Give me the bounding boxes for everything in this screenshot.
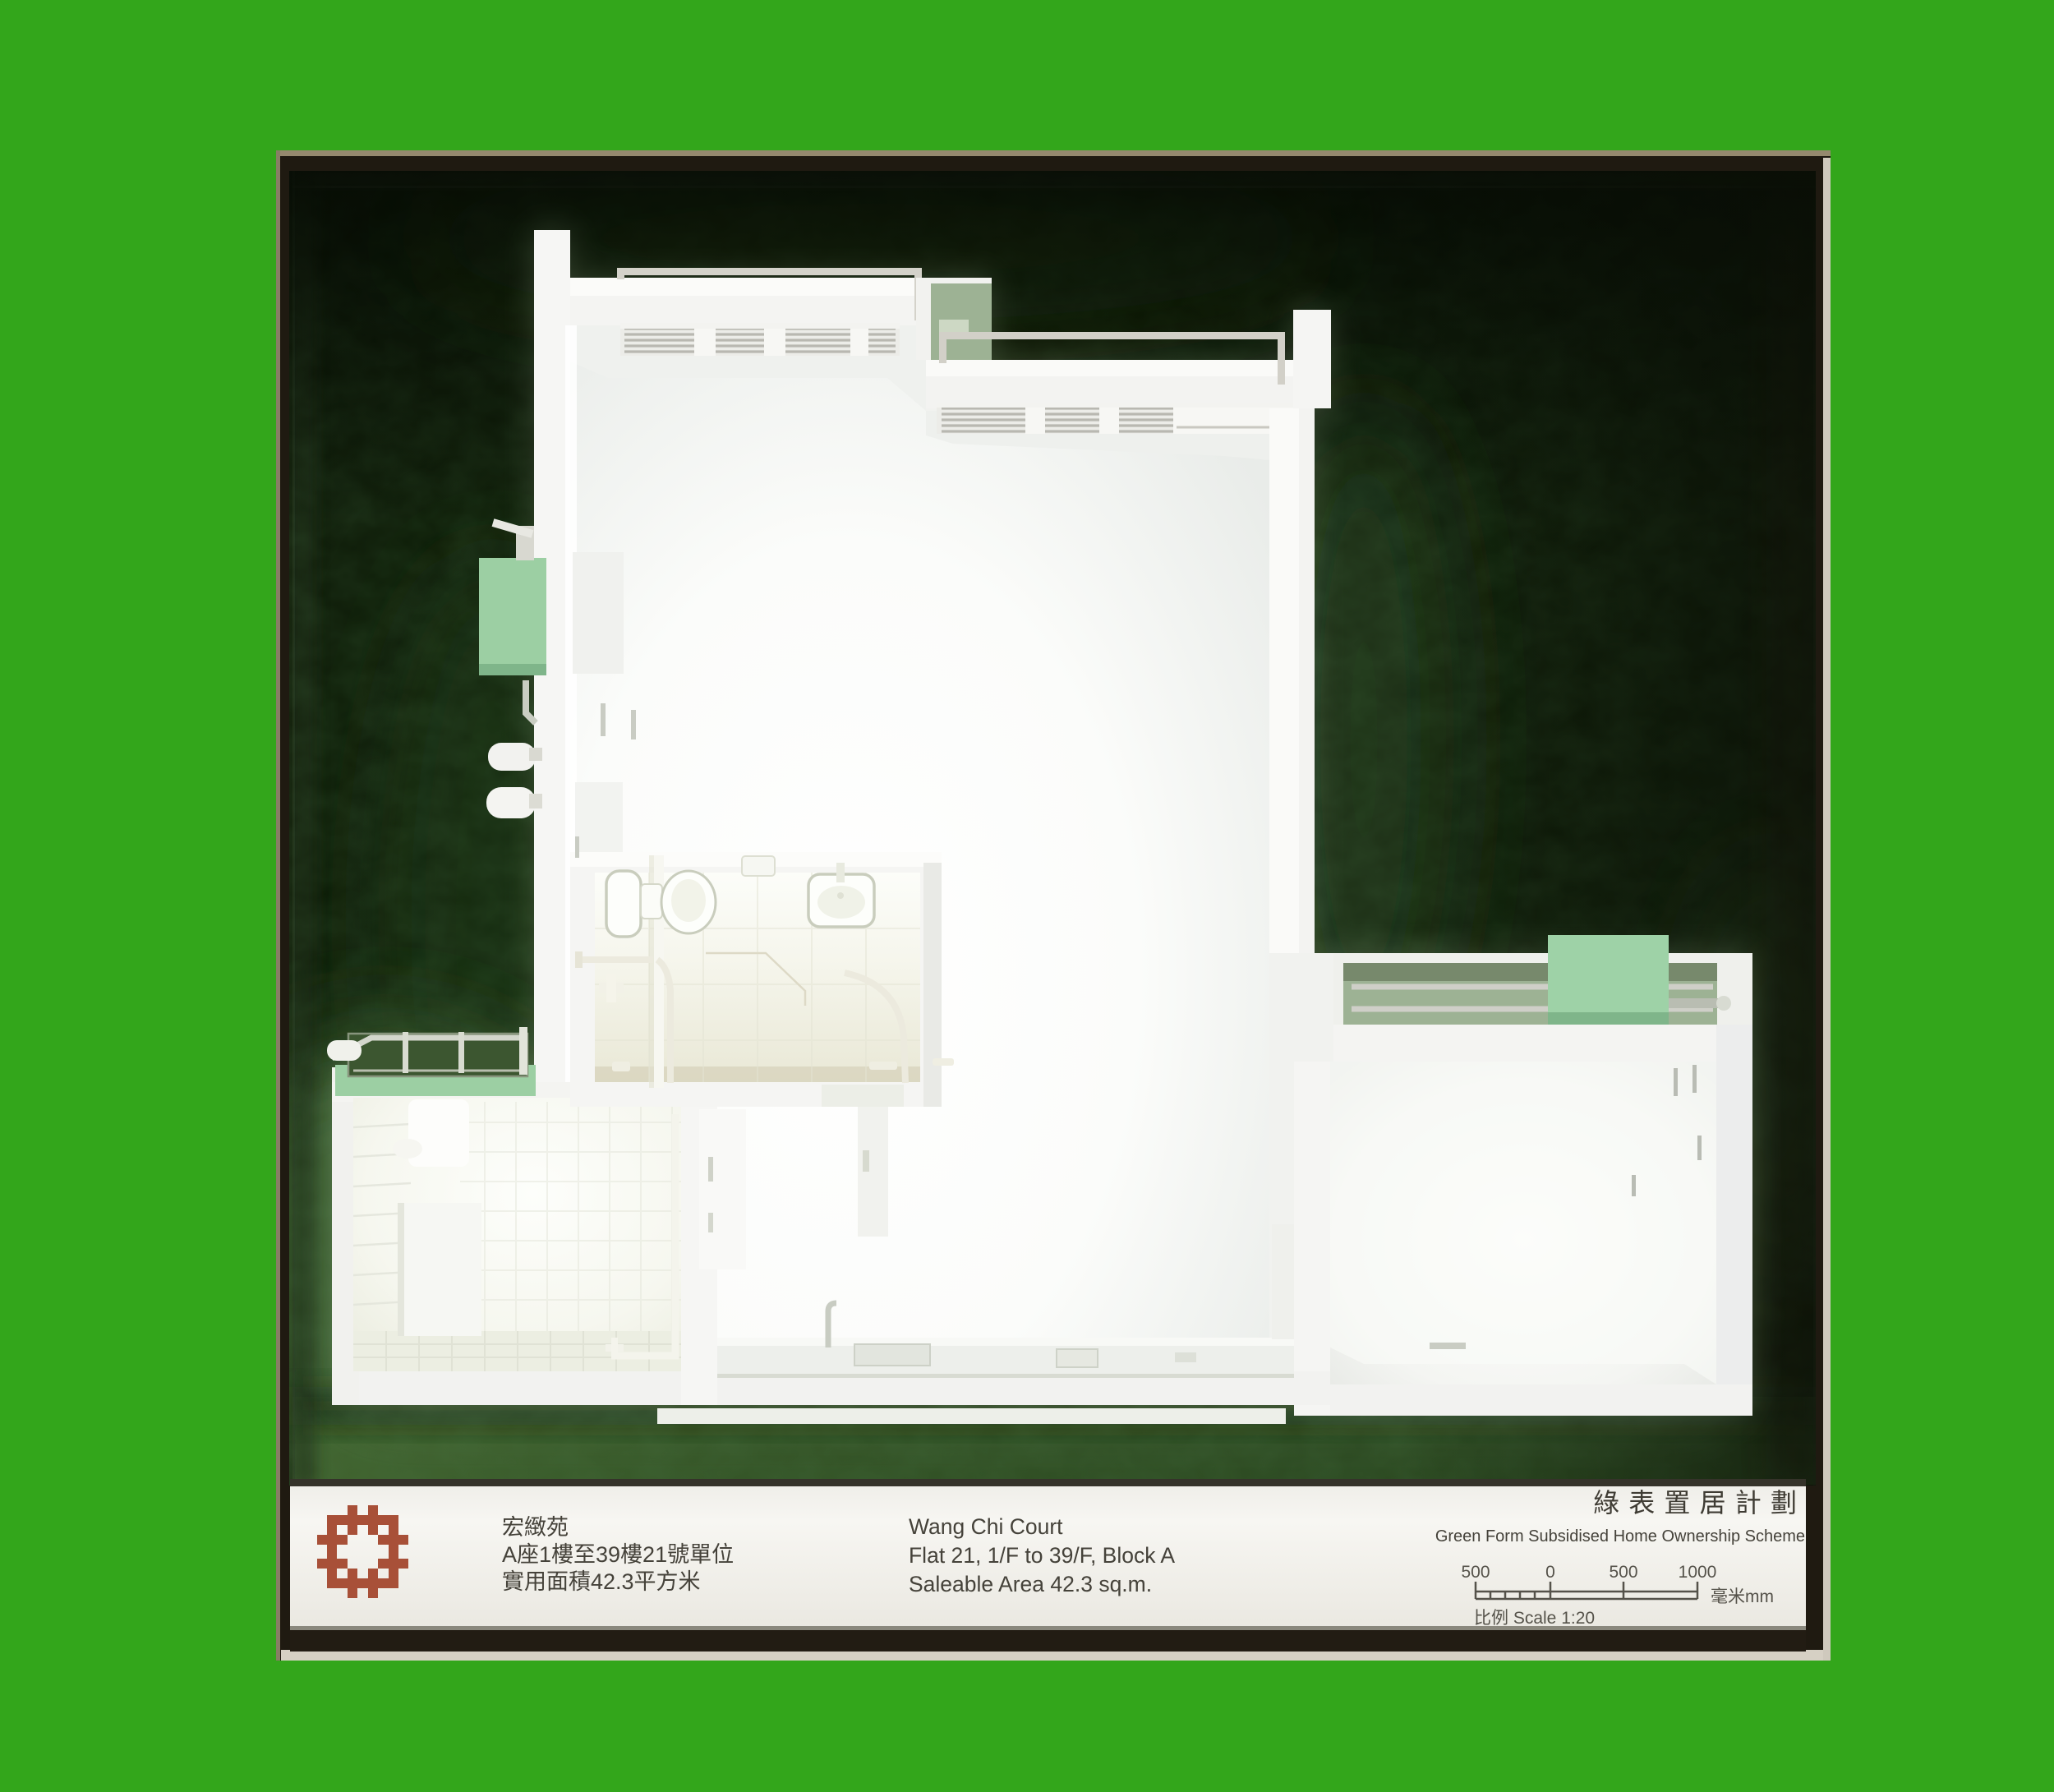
svg-text:綠表置居計劃: 綠表置居計劃 [1593, 1488, 1806, 1518]
svg-text:實用面積42.3平方米: 實用面積42.3平方米 [502, 1569, 701, 1594]
svg-text:500: 500 [1609, 1563, 1637, 1582]
svg-text:Flat 21, 1/F to 39/F, Block A: Flat 21, 1/F to 39/F, Block A [909, 1543, 1175, 1568]
svg-text:0: 0 [1545, 1563, 1555, 1582]
svg-text:比例 Scale 1:20: 比例 Scale 1:20 [1474, 1609, 1595, 1628]
svg-text:Green Form Subsidised Home Own: Green Form Subsidised Home Ownership Sch… [1435, 1527, 1805, 1546]
svg-text:宏緻苑: 宏緻苑 [502, 1515, 569, 1540]
svg-text:Wang Chi Court: Wang Chi Court [909, 1514, 1063, 1539]
svg-text:A座1樓至39樓21號單位: A座1樓至39樓21號單位 [502, 1542, 734, 1567]
svg-text:500: 500 [1461, 1563, 1490, 1582]
svg-text:Saleable Area 42.3 sq.m.: Saleable Area 42.3 sq.m. [909, 1572, 1152, 1596]
svg-text:1000: 1000 [1679, 1563, 1717, 1582]
svg-text:毫米mm: 毫米mm [1711, 1587, 1774, 1606]
